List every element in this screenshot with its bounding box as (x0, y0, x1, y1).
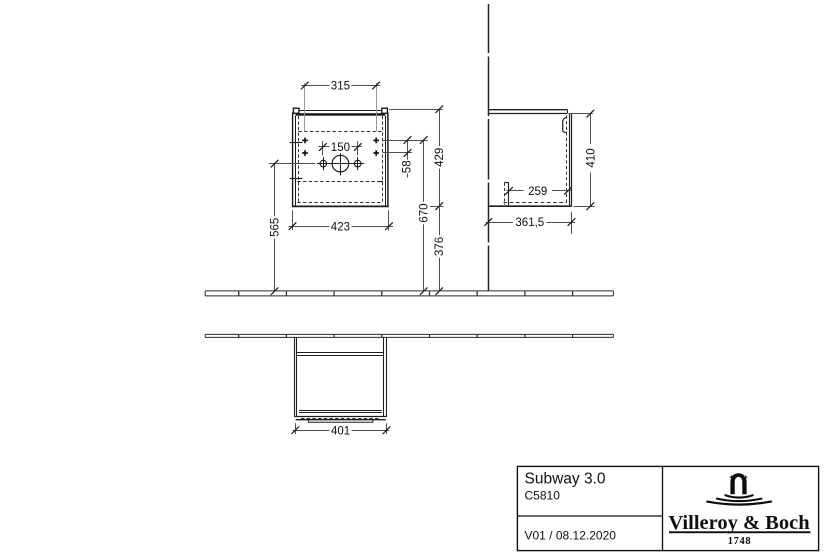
svg-text:150: 150 (331, 142, 350, 154)
svg-text:423: 423 (331, 221, 350, 233)
svg-text:429: 429 (434, 148, 446, 167)
svg-text:376: 376 (434, 237, 446, 256)
svg-text:1748: 1748 (728, 536, 751, 547)
svg-text:58: 58 (402, 160, 414, 173)
svg-text:Subway 3.0: Subway 3.0 (525, 470, 606, 487)
svg-text:410: 410 (585, 148, 597, 167)
svg-text:Villeroy & Boch: Villeroy & Boch (668, 512, 810, 534)
svg-text:401: 401 (331, 425, 350, 437)
svg-text:259: 259 (528, 186, 547, 198)
svg-text:C5810: C5810 (525, 489, 561, 503)
svg-text:565: 565 (270, 218, 282, 237)
svg-text:V01 / 08.12.2020: V01 / 08.12.2020 (525, 528, 617, 542)
svg-text:315: 315 (331, 81, 350, 93)
svg-text:670: 670 (419, 203, 431, 222)
svg-text:361,5: 361,5 (515, 217, 544, 229)
